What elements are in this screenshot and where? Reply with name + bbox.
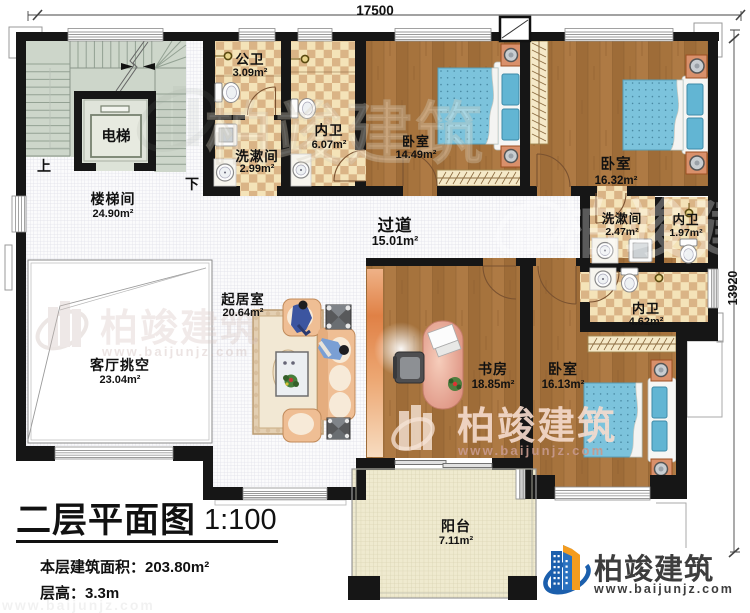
svg-text:15.01m²: 15.01m²	[372, 234, 419, 248]
svg-text:电梯: 电梯	[102, 127, 131, 145]
svg-text:层高：3.3m: 层高：3.3m	[40, 584, 119, 602]
svg-text:上: 上	[37, 158, 51, 174]
svg-text:1:100: 1:100	[204, 504, 277, 536]
svg-text:3.09m²: 3.09m²	[233, 67, 268, 79]
svg-text:卧室: 卧室	[601, 155, 632, 173]
svg-text:卧室: 卧室	[402, 134, 430, 149]
svg-text:23.04m²: 23.04m²	[100, 374, 141, 386]
svg-text:2.99m²: 2.99m²	[240, 163, 275, 175]
svg-text:洗漱间: 洗漱间	[602, 211, 643, 226]
svg-text:14.49m²: 14.49m²	[396, 149, 437, 161]
svg-text:2.47m²: 2.47m²	[605, 226, 639, 238]
svg-text:17500: 17500	[356, 3, 394, 18]
svg-text:洗漱间: 洗漱间	[235, 148, 279, 164]
svg-text:24.90m²: 24.90m²	[93, 208, 134, 220]
svg-text:本层建筑面积：203.80m²: 本层建筑面积：203.80m²	[40, 558, 209, 576]
svg-text:4.62m²: 4.62m²	[629, 316, 664, 328]
svg-text:7.11m²: 7.11m²	[439, 535, 474, 547]
svg-text:楼梯间: 楼梯间	[91, 191, 136, 207]
svg-text:www.baijunjz.com: www.baijunjz.com	[593, 582, 734, 596]
svg-text:www.baijunjz.com: www.baijunjz.com	[457, 443, 605, 458]
svg-text:起居室: 起居室	[220, 291, 265, 307]
svg-text:客厅挑空: 客厅挑空	[89, 357, 150, 373]
svg-text:二层平面图: 二层平面图	[16, 501, 196, 540]
svg-text:阳台: 阳台	[441, 518, 471, 534]
svg-text:内卫: 内卫	[315, 122, 344, 138]
svg-text:公卫: 公卫	[236, 52, 265, 67]
svg-text:下: 下	[185, 176, 199, 192]
svg-text:柏竣建筑: 柏竣建筑	[594, 552, 714, 586]
svg-text:书房: 书房	[478, 361, 508, 377]
svg-text:6.07m²: 6.07m²	[312, 139, 347, 151]
svg-text:18.85m²: 18.85m²	[472, 379, 515, 391]
svg-text:16.32m²: 16.32m²	[595, 175, 638, 187]
svg-text:卧室: 卧室	[548, 361, 578, 377]
svg-text:柏竣建筑: 柏竣建筑	[556, 194, 750, 266]
svg-text:13920: 13920	[726, 271, 740, 306]
svg-text:过道: 过道	[378, 215, 413, 235]
svg-text:内卫: 内卫	[632, 301, 660, 316]
svg-text:1.97m²: 1.97m²	[669, 227, 703, 239]
svg-text:20.64m²: 20.64m²	[223, 307, 264, 319]
svg-text:内卫: 内卫	[672, 212, 699, 227]
svg-text:16.13m²: 16.13m²	[542, 379, 585, 391]
svg-text:柏竣建筑: 柏竣建筑	[457, 406, 617, 448]
